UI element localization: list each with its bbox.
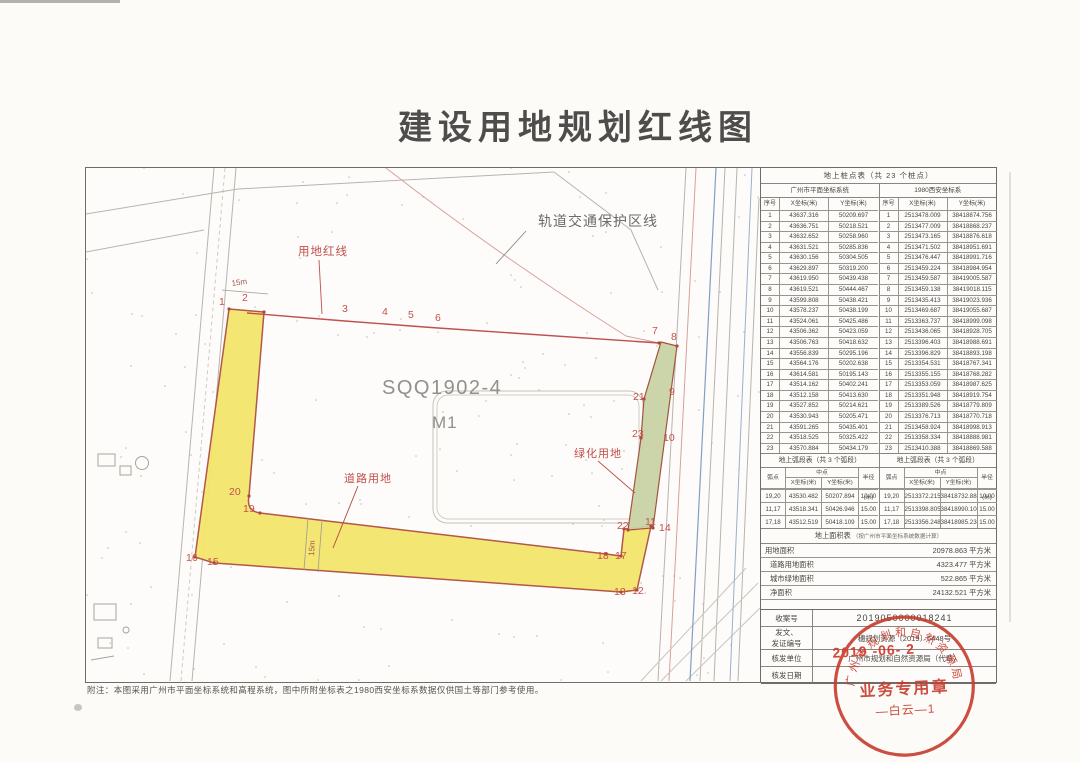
table-cell: 43530.943 bbox=[779, 411, 828, 422]
table-cell: 50195.143 bbox=[828, 369, 878, 380]
table-cell: 11 bbox=[761, 316, 779, 327]
table-cell: 43619.521 bbox=[779, 284, 828, 295]
table-cell: 43632.652 bbox=[779, 231, 828, 242]
point-number-label: 1 bbox=[219, 296, 225, 308]
table-cell: 50209.697 bbox=[828, 210, 878, 221]
table-cell: 16 bbox=[761, 369, 779, 380]
table-cell: 20 bbox=[761, 411, 779, 422]
table-cell: 2513478.009 bbox=[898, 210, 947, 221]
table-cell: 38418768.282 bbox=[947, 369, 997, 380]
table-cell: 2513354.531 bbox=[898, 358, 947, 369]
table-cell: 4 bbox=[761, 242, 779, 253]
arc-rows-gz: 19,2043530.48250207.89410.0011,1743518.3… bbox=[761, 489, 879, 528]
table-cell: 8 bbox=[761, 284, 779, 295]
table-cell: 13 bbox=[761, 337, 779, 348]
table-cell: 2513459.587 bbox=[898, 273, 947, 284]
table-cell: 50423.059 bbox=[828, 326, 878, 337]
table-cell: 38418988.691 bbox=[947, 337, 997, 348]
table-cell: 38419018.115 bbox=[947, 284, 997, 295]
table-cell: 38418869.588 bbox=[947, 443, 997, 454]
table-cell: 50319.200 bbox=[828, 263, 878, 274]
table-cell: 43578.237 bbox=[779, 305, 828, 316]
area-row: 城市绿地面积522.865 平方米 bbox=[761, 572, 996, 586]
parcel-use-label: M1 bbox=[432, 413, 458, 432]
table-cell: 43506.763 bbox=[779, 337, 828, 348]
area-value: 20978.863 平方米 bbox=[933, 544, 996, 557]
table-cell: 15 bbox=[880, 358, 898, 369]
stamp-center-text: 业务专用章 bbox=[859, 677, 950, 701]
table-cell: 50438.199 bbox=[828, 305, 878, 316]
table-cell: 50218.521 bbox=[828, 221, 878, 232]
table-cell: 38418770.718 bbox=[947, 411, 997, 422]
arc-table-gz: 地上弧段表（共 3 个弧段） 弧点 中点 X坐标(米) Y坐标(米) 半径(米)… bbox=[761, 454, 879, 528]
table-cell: 50402.241 bbox=[828, 379, 878, 390]
point-table-title: 地上桩点表（共 23 个桩点） bbox=[761, 168, 996, 184]
table-cell: 50202.638 bbox=[828, 358, 878, 369]
table-cell: 22 bbox=[880, 432, 898, 443]
table-cell: 38418990.100 bbox=[940, 502, 977, 515]
table-cell: 18 bbox=[880, 390, 898, 401]
table-cell: 43514.162 bbox=[779, 379, 828, 390]
table-cell: 50214.621 bbox=[828, 400, 878, 411]
arc-rows-xa: 19,202513372.21538418732.88810.0011,1725… bbox=[880, 489, 997, 528]
table-cell: 43599.808 bbox=[779, 295, 828, 306]
table-cell: 43524.061 bbox=[779, 316, 828, 327]
table-cell: 38418999.098 bbox=[947, 316, 997, 327]
table-cell: 43614.581 bbox=[779, 369, 828, 380]
table-cell: 20 bbox=[880, 411, 898, 422]
area-row: 道路用地面积4323.477 平方米 bbox=[761, 558, 996, 572]
point-number-label: 23 bbox=[632, 428, 644, 440]
dim-top-label: 15m bbox=[231, 277, 248, 288]
table-cell: 10.00 bbox=[977, 489, 997, 502]
table-cell: 4 bbox=[880, 242, 898, 253]
arc-table-xa: 地上弧段表（共 3 个弧段） 弧点 中点 X坐标(米) Y坐标(米) 半径(米)… bbox=[879, 454, 997, 528]
table-cell: 43530.482 bbox=[785, 489, 821, 502]
table-cell: 2513469.687 bbox=[898, 305, 947, 316]
xa-system-header: 1980西安坐标系 bbox=[880, 184, 997, 198]
table-cell: 18 bbox=[761, 390, 779, 401]
table-cell: 38418868.237 bbox=[947, 221, 997, 232]
table-cell: 17,18 bbox=[880, 515, 904, 528]
table-cell: 2513458.924 bbox=[898, 422, 947, 433]
table-cell: 43570.884 bbox=[779, 443, 828, 454]
table-cell: 19 bbox=[880, 400, 898, 411]
site-plan-map: 轨道交通保护区线 用地红线 SQQ1902-4 M1 绿化用地 道路用地 15m… bbox=[86, 168, 760, 682]
table-cell: 38418919.754 bbox=[947, 390, 997, 401]
table-cell: 2513396.403 bbox=[898, 337, 947, 348]
table-cell: 50435.401 bbox=[828, 422, 878, 433]
table-cell: 43518.525 bbox=[779, 432, 828, 443]
table-cell: 50418.109 bbox=[821, 515, 858, 528]
table-cell: 43631.521 bbox=[779, 242, 828, 253]
table-cell: 2 bbox=[880, 221, 898, 232]
table-cell: 23 bbox=[880, 443, 898, 454]
table-cell: 17 bbox=[761, 379, 779, 390]
table-cell: 2513355.155 bbox=[898, 369, 947, 380]
table-cell: 50438.421 bbox=[828, 295, 878, 306]
point-number-label: 22 bbox=[617, 520, 629, 532]
point-number-label: 15 bbox=[207, 556, 219, 568]
road-land-label: 道路用地 bbox=[344, 471, 392, 485]
point-number-label: 2 bbox=[242, 292, 248, 304]
stamp-sub-text: —白云—1 bbox=[875, 701, 935, 719]
point-table: 广州市平面坐标系统 序号 X坐标(米) Y坐标(米) 143637.316502… bbox=[761, 184, 996, 453]
area-table-title: 地上面积表 （按广州市平面坐标系统数据计算） bbox=[761, 529, 996, 544]
table-cell: 15.00 bbox=[977, 502, 997, 515]
point-number-label: 21 bbox=[633, 391, 645, 403]
point-number-label: 19 bbox=[243, 503, 255, 515]
table-cell: 2513477.009 bbox=[898, 221, 947, 232]
point-number-label: 5 bbox=[408, 309, 414, 321]
table-cell: 38418998.913 bbox=[947, 422, 997, 433]
table-cell: 38419023.936 bbox=[947, 295, 997, 306]
table-cell: 2513363.737 bbox=[898, 316, 947, 327]
table-cell: 2 bbox=[761, 221, 779, 232]
table-cell: 19,20 bbox=[880, 489, 904, 502]
table-cell: 5 bbox=[761, 252, 779, 263]
area-value: 4323.477 平方米 bbox=[937, 558, 996, 571]
table-cell: 2513476.447 bbox=[898, 252, 947, 263]
area-row: 用地面积20978.863 平方米 bbox=[761, 544, 996, 558]
table-cell: 1 bbox=[880, 210, 898, 221]
point-number-label: 4 bbox=[382, 306, 388, 318]
table-cell: 2513353.059 bbox=[898, 379, 947, 390]
table-cell: 2513351.948 bbox=[898, 390, 947, 401]
table-cell: 43518.341 bbox=[785, 502, 821, 515]
table-cell: 11 bbox=[880, 316, 898, 327]
official-stamp: 2019 -06- 2 广州市规划和自然资源局 业务专用章 —白云—1 bbox=[788, 592, 1024, 763]
table-cell: 19,20 bbox=[761, 489, 785, 502]
table-cell: 1 bbox=[761, 210, 779, 221]
table-cell: 6 bbox=[880, 263, 898, 274]
table-cell: 38418874.756 bbox=[947, 210, 997, 221]
table-cell: 14 bbox=[761, 348, 779, 359]
paper-crease bbox=[1009, 172, 1011, 622]
table-cell: 2513473.165 bbox=[898, 231, 947, 242]
table-cell: 50426.946 bbox=[821, 502, 858, 515]
point-table-gz: 广州市平面坐标系统 序号 X坐标(米) Y坐标(米) 143637.316502… bbox=[761, 184, 879, 453]
table-cell: 38418893.198 bbox=[947, 348, 997, 359]
table-cell: 38418985.234 bbox=[940, 515, 977, 528]
table-cell: 2513471.502 bbox=[898, 242, 947, 253]
table-cell: 13 bbox=[880, 337, 898, 348]
table-cell: 50205.471 bbox=[828, 411, 878, 422]
arc-table: 地上弧段表（共 3 个弧段） 弧点 中点 X坐标(米) Y坐标(米) 半径(米)… bbox=[761, 453, 996, 528]
table-cell: 17,18 bbox=[761, 515, 785, 528]
dim-bottom-label: 15m bbox=[307, 540, 317, 556]
table-cell: 22 bbox=[761, 432, 779, 443]
table-cell: 38418928.705 bbox=[947, 326, 997, 337]
table-cell: 2513398.805 bbox=[904, 502, 940, 515]
page-title: 建设用地规划红线图 bbox=[398, 100, 758, 149]
point-number-label: 13 bbox=[614, 586, 626, 598]
table-cell: 50413.630 bbox=[828, 390, 878, 401]
table-cell: 5 bbox=[880, 252, 898, 263]
table-cell: 14 bbox=[880, 348, 898, 359]
parcel-code-label: SQQ1902-4 bbox=[382, 377, 502, 399]
scan-artifact bbox=[74, 704, 82, 711]
table-cell: 38419005.587 bbox=[947, 273, 997, 284]
point-number-label: 10 bbox=[663, 432, 675, 444]
table-cell: 3 bbox=[880, 231, 898, 242]
xa-coordinate-rows: 12513478.00938418874.75622513477.0093841… bbox=[880, 210, 997, 453]
point-number-label: 3 bbox=[342, 303, 348, 315]
table-cell: 15.00 bbox=[858, 515, 878, 528]
area-label: 道路用地面积 bbox=[761, 558, 937, 571]
green-land-label: 绿化用地 bbox=[574, 446, 622, 460]
table-cell: 50325.422 bbox=[828, 432, 878, 443]
xa-col-headers: 序号 X坐标(米) Y坐标(米) bbox=[880, 198, 997, 210]
table-cell: 8 bbox=[880, 284, 898, 295]
table-cell: 9 bbox=[880, 295, 898, 306]
table-cell: 15 bbox=[761, 358, 779, 369]
rail-protection-label: 轨道交通保护区线 bbox=[538, 213, 658, 229]
gz-system-header: 广州市平面坐标系统 bbox=[761, 184, 879, 198]
point-number-label: 16 bbox=[186, 552, 198, 564]
scan-artifact bbox=[0, 0, 120, 3]
table-cell: 38419055.687 bbox=[947, 305, 997, 316]
table-cell: 9 bbox=[761, 295, 779, 306]
table-cell: 43506.362 bbox=[779, 326, 828, 337]
table-cell: 2513459.138 bbox=[898, 284, 947, 295]
table-cell: 50418.632 bbox=[828, 337, 878, 348]
table-cell: 43636.751 bbox=[779, 221, 828, 232]
point-table-xa: 1980西安坐标系 序号 X坐标(米) Y坐标(米) 12513478.0093… bbox=[879, 184, 997, 453]
area-table: 地上面积表 （按广州市平面坐标系统数据计算） 用地面积20978.863 平方米… bbox=[761, 528, 996, 600]
point-number-label: 7 bbox=[652, 325, 658, 337]
table-cell: 38418984.954 bbox=[947, 263, 997, 274]
table-cell: 38418888.981 bbox=[947, 432, 997, 443]
table-cell: 12 bbox=[761, 326, 779, 337]
table-cell: 10 bbox=[761, 305, 779, 316]
table-cell: 38418732.888 bbox=[940, 489, 977, 502]
table-cell: 11,17 bbox=[880, 502, 904, 515]
point-number-label: 18 bbox=[597, 550, 609, 562]
table-cell: 50207.894 bbox=[821, 489, 858, 502]
area-value: 522.865 平方米 bbox=[941, 572, 996, 585]
table-cell: 2513435.413 bbox=[898, 295, 947, 306]
table-cell: 43564.176 bbox=[779, 358, 828, 369]
table-cell: 43556.839 bbox=[779, 348, 828, 359]
table-cell: 38418767.341 bbox=[947, 358, 997, 369]
table-cell: 2513358.334 bbox=[898, 432, 947, 443]
table-cell: 2513396.829 bbox=[898, 348, 947, 359]
table-cell: 7 bbox=[880, 273, 898, 284]
table-cell: 38418876.618 bbox=[947, 231, 997, 242]
point-number-label: 20 bbox=[229, 486, 241, 498]
table-cell: 15.00 bbox=[858, 502, 878, 515]
table-cell: 2513376.713 bbox=[898, 411, 947, 422]
table-cell: 10.00 bbox=[858, 489, 878, 502]
table-cell: 38418779.809 bbox=[947, 400, 997, 411]
point-number-label: 8 bbox=[671, 331, 677, 343]
table-cell: 43637.316 bbox=[779, 210, 828, 221]
scanned-redline-drawing: 建设用地规划红线图 bbox=[0, 0, 1080, 763]
table-cell: 21 bbox=[880, 422, 898, 433]
table-cell: 2513356.248 bbox=[904, 515, 940, 528]
table-cell: 50304.505 bbox=[828, 252, 878, 263]
table-cell: 6 bbox=[761, 263, 779, 274]
table-cell: 50425.486 bbox=[828, 316, 878, 327]
table-cell: 50258.960 bbox=[828, 231, 878, 242]
table-cell: 21 bbox=[761, 422, 779, 433]
table-cell: 43591.265 bbox=[779, 422, 828, 433]
area-rows: 用地面积20978.863 平方米道路用地面积4323.477 平方米城市绿地面… bbox=[761, 544, 996, 600]
table-cell: 2513459.224 bbox=[898, 263, 947, 274]
table-cell: 19 bbox=[761, 400, 779, 411]
table-cell: 38418951.691 bbox=[947, 242, 997, 253]
small-structures bbox=[91, 454, 149, 660]
table-cell: 50434.179 bbox=[828, 443, 878, 454]
table-cell: 38418987.625 bbox=[947, 379, 997, 390]
table-cell: 2513410.388 bbox=[898, 443, 947, 454]
table-cell: 11,17 bbox=[761, 502, 785, 515]
area-label: 用地面积 bbox=[761, 544, 933, 557]
table-cell: 43629.897 bbox=[779, 263, 828, 274]
table-cell: 2513372.215 bbox=[904, 489, 940, 502]
table-cell: 7 bbox=[761, 273, 779, 284]
table-cell: 2513389.526 bbox=[898, 400, 947, 411]
table-cell: 16 bbox=[880, 369, 898, 380]
table-cell: 23 bbox=[761, 443, 779, 454]
table-cell: 50285.836 bbox=[828, 242, 878, 253]
table-cell: 50439.438 bbox=[828, 273, 878, 284]
point-number-label: 12 bbox=[632, 585, 644, 597]
table-cell: 43512.158 bbox=[779, 390, 828, 401]
gz-coordinate-rows: 143637.31650209.697243636.75150218.52134… bbox=[761, 210, 879, 453]
point-number-label: 11 bbox=[645, 516, 656, 528]
table-cell: 43512.519 bbox=[785, 515, 821, 528]
table-cell: 43630.156 bbox=[779, 252, 828, 263]
point-number-label: 14 bbox=[659, 522, 671, 534]
table-cell: 50444.467 bbox=[828, 284, 878, 295]
table-cell: 12 bbox=[880, 326, 898, 337]
table-cell: 17 bbox=[880, 379, 898, 390]
table-cell: 10 bbox=[880, 305, 898, 316]
table-cell: 50295.196 bbox=[828, 348, 878, 359]
point-number-label: 6 bbox=[435, 312, 441, 324]
table-cell: 3 bbox=[761, 231, 779, 242]
table-cell: 43619.950 bbox=[779, 273, 828, 284]
table-cell: 38418991.716 bbox=[947, 252, 997, 263]
area-label: 城市绿地面积 bbox=[761, 572, 941, 585]
table-cell: 43527.852 bbox=[779, 400, 828, 411]
point-number-label: 9 bbox=[669, 386, 675, 398]
redline-label: 用地红线 bbox=[298, 244, 348, 258]
table-cell: 15.00 bbox=[977, 515, 997, 528]
footnote: 附注：本图采用广州市平面坐标系统和高程系统，图中所附坐标表之1980西安坐标系数… bbox=[87, 684, 544, 696]
table-cell: 2513436.065 bbox=[898, 326, 947, 337]
point-number-label: 17 bbox=[615, 550, 627, 562]
gz-col-headers: 序号 X坐标(米) Y坐标(米) bbox=[761, 198, 879, 210]
